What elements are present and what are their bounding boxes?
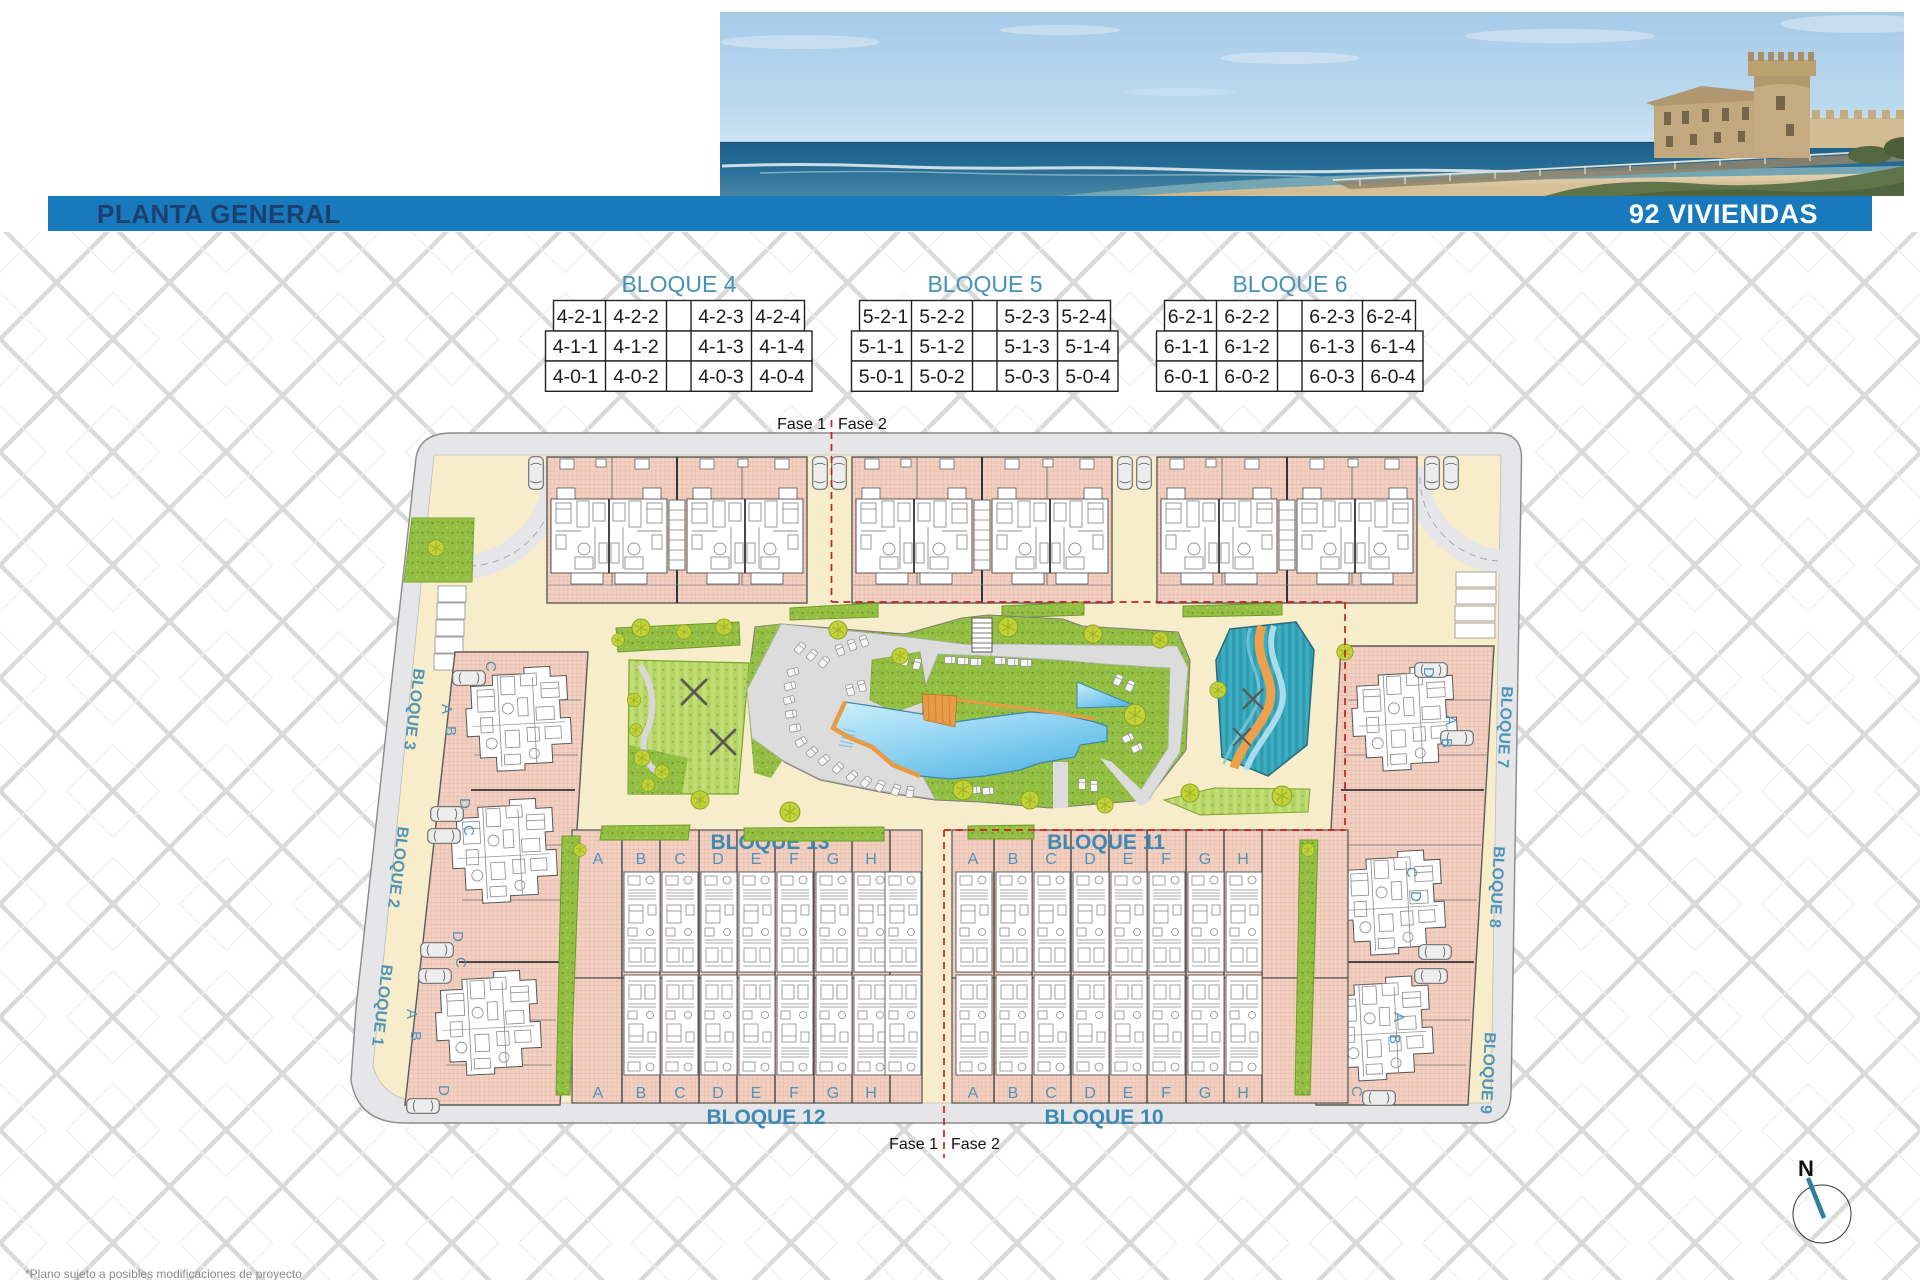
svg-text:4-2-2: 4-2-2 bbox=[613, 306, 659, 328]
svg-text:6-0-1: 6-0-1 bbox=[1164, 366, 1210, 388]
svg-text:4-2-4: 4-2-4 bbox=[755, 306, 801, 328]
svg-text:C: C bbox=[460, 825, 477, 836]
svg-text:6-0-2: 6-0-2 bbox=[1224, 366, 1270, 388]
svg-text:4-0-4: 4-0-4 bbox=[759, 366, 805, 388]
svg-text:4-1-2: 4-1-2 bbox=[613, 336, 659, 358]
svg-text:BLOQUE 5: BLOQUE 5 bbox=[927, 271, 1042, 297]
svg-text:4-1-3: 4-1-3 bbox=[698, 336, 744, 358]
svg-text:5-0-1: 5-0-1 bbox=[859, 366, 905, 388]
svg-text:5-1-4: 5-1-4 bbox=[1065, 336, 1111, 358]
svg-text:5-0-3: 5-0-3 bbox=[1004, 366, 1050, 388]
svg-text:5-1-2: 5-1-2 bbox=[919, 336, 965, 358]
svg-text:4-0-2: 4-0-2 bbox=[613, 366, 659, 388]
svg-text:A: A bbox=[438, 704, 455, 714]
svg-text:D: D bbox=[456, 798, 473, 809]
svg-text:6-2-3: 6-2-3 bbox=[1309, 306, 1355, 328]
svg-text:4-1-1: 4-1-1 bbox=[553, 336, 599, 358]
svg-text:6-1-4: 6-1-4 bbox=[1370, 336, 1416, 358]
svg-text:G: G bbox=[1199, 851, 1211, 868]
svg-text:F: F bbox=[789, 1085, 799, 1102]
svg-text:6-2-2: 6-2-2 bbox=[1224, 306, 1270, 328]
svg-text:B: B bbox=[1438, 738, 1455, 748]
svg-text:A: A bbox=[593, 851, 604, 868]
svg-text:Fase 2: Fase 2 bbox=[951, 1136, 1000, 1153]
svg-text:5-2-4: 5-2-4 bbox=[1061, 306, 1107, 328]
svg-text:G: G bbox=[1199, 1085, 1211, 1102]
svg-text:BLOQUE 6: BLOQUE 6 bbox=[1232, 271, 1347, 297]
svg-text:D: D bbox=[449, 931, 466, 942]
svg-text:A: A bbox=[968, 1085, 979, 1102]
svg-text:F: F bbox=[1161, 1085, 1171, 1102]
svg-text:H: H bbox=[865, 1085, 877, 1102]
svg-text:5-0-4: 5-0-4 bbox=[1065, 366, 1111, 388]
svg-text:C: C bbox=[452, 957, 469, 968]
svg-text:G: G bbox=[827, 1085, 839, 1102]
svg-text:C: C bbox=[1348, 1086, 1365, 1097]
svg-text:C: C bbox=[674, 851, 686, 868]
svg-text:4-0-3: 4-0-3 bbox=[698, 366, 744, 388]
svg-text:92 VIVIENDAS: 92 VIVIENDAS bbox=[1629, 199, 1818, 229]
svg-text:B: B bbox=[407, 1031, 424, 1041]
svg-text:6-1-2: 6-1-2 bbox=[1224, 336, 1270, 358]
svg-text:H: H bbox=[1237, 851, 1249, 868]
svg-text:B: B bbox=[442, 726, 459, 736]
svg-text:4-1-4: 4-1-4 bbox=[759, 336, 805, 358]
svg-text:BLOQUE 4: BLOQUE 4 bbox=[621, 271, 736, 297]
svg-text:C: C bbox=[482, 661, 499, 672]
svg-text:5-1-3: 5-1-3 bbox=[1004, 336, 1050, 358]
svg-text:5-1-1: 5-1-1 bbox=[859, 336, 905, 358]
svg-text:6-0-3: 6-0-3 bbox=[1309, 366, 1355, 388]
svg-text:H: H bbox=[1237, 1085, 1249, 1102]
svg-text:PLANTA GENERAL: PLANTA GENERAL bbox=[97, 199, 341, 229]
svg-text:C: C bbox=[1045, 1085, 1057, 1102]
svg-text:5-2-3: 5-2-3 bbox=[1004, 306, 1050, 328]
svg-text:BLOQUE 10: BLOQUE 10 bbox=[1044, 1106, 1163, 1129]
svg-text:5-0-2: 5-0-2 bbox=[919, 366, 965, 388]
svg-text:B: B bbox=[1008, 1085, 1019, 1102]
svg-text:Fase 1: Fase 1 bbox=[777, 416, 826, 433]
svg-text:A: A bbox=[403, 1009, 420, 1019]
svg-text:BLOQUE 11: BLOQUE 11 bbox=[1047, 831, 1165, 854]
svg-text:4-0-1: 4-0-1 bbox=[553, 366, 599, 388]
svg-text:Fase 1: Fase 1 bbox=[889, 1136, 938, 1153]
svg-text:E: E bbox=[1123, 1085, 1134, 1102]
svg-text:Fase 2: Fase 2 bbox=[838, 416, 887, 433]
svg-text:BLOQUE 12: BLOQUE 12 bbox=[706, 1106, 825, 1129]
svg-text:5-2-2: 5-2-2 bbox=[919, 306, 965, 328]
svg-text:6-0-4: 6-0-4 bbox=[1370, 366, 1416, 388]
svg-text:D: D bbox=[435, 1085, 452, 1096]
svg-text:A: A bbox=[593, 1085, 604, 1102]
svg-text:5-2-1: 5-2-1 bbox=[863, 306, 909, 328]
svg-text:E: E bbox=[751, 1085, 762, 1102]
svg-text:6-2-4: 6-2-4 bbox=[1366, 306, 1412, 328]
svg-text:D: D bbox=[1407, 891, 1424, 902]
svg-text:6-1-1: 6-1-1 bbox=[1164, 336, 1210, 358]
svg-text:D: D bbox=[1420, 667, 1437, 678]
svg-text:D: D bbox=[712, 1085, 724, 1102]
svg-text:4-2-1: 4-2-1 bbox=[557, 306, 603, 328]
svg-text:B: B bbox=[1386, 1034, 1403, 1044]
svg-text:A: A bbox=[1390, 1012, 1407, 1022]
svg-text:4-2-3: 4-2-3 bbox=[698, 306, 744, 328]
svg-text:C: C bbox=[674, 1085, 686, 1102]
svg-text:H: H bbox=[865, 851, 877, 868]
svg-text:*Plano sujeto a posibles modif: *Plano sujeto a posibles modificaciones … bbox=[25, 1267, 302, 1280]
svg-text:6-2-1: 6-2-1 bbox=[1168, 306, 1214, 328]
svg-text:B: B bbox=[1008, 851, 1019, 868]
svg-text:B: B bbox=[636, 851, 647, 868]
svg-text:N: N bbox=[1798, 1156, 1814, 1181]
svg-text:A: A bbox=[968, 851, 979, 868]
svg-text:C: C bbox=[1403, 867, 1420, 878]
svg-text:B: B bbox=[636, 1085, 647, 1102]
svg-text:A: A bbox=[1442, 715, 1459, 725]
svg-text:D: D bbox=[1084, 1085, 1096, 1102]
svg-text:6-1-3: 6-1-3 bbox=[1309, 336, 1355, 358]
